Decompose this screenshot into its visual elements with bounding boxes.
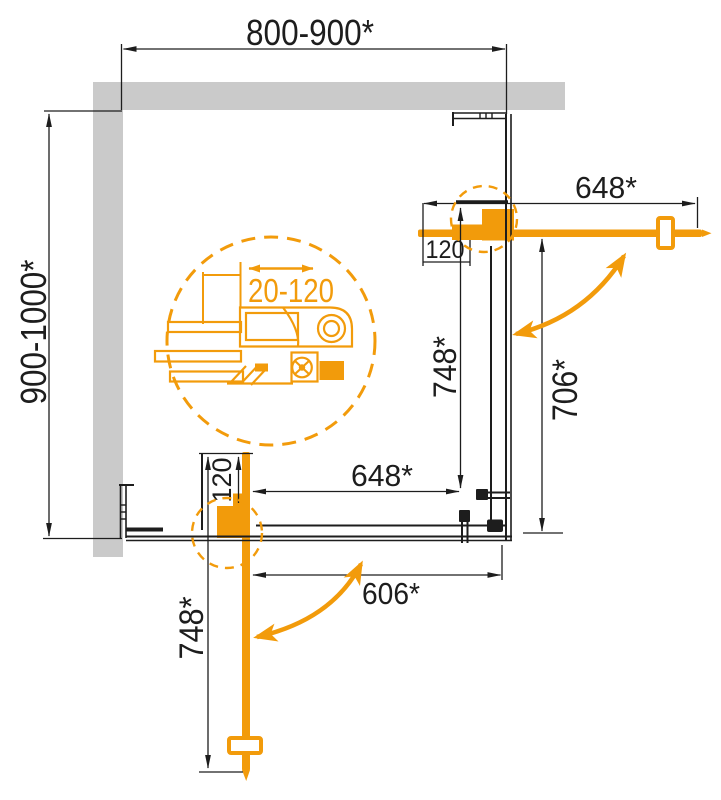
dim-bottom-door-open-label: 748* — [173, 597, 211, 660]
door-right-tip — [702, 230, 712, 238]
wall-top — [93, 82, 565, 110]
dim-bottom-panel-width-label: 648* — [351, 458, 413, 493]
swing-arrow-right-door — [516, 256, 624, 334]
dim-right-opening: 706* — [523, 239, 585, 533]
detail-callout: 20-120 — [155, 237, 375, 445]
walls — [93, 82, 565, 557]
handle-right-door — [658, 218, 673, 248]
technical-drawing-canvas: 800-900* 900-1000* 648* 120 748* — [0, 0, 721, 800]
dim-bottom-hinge-offset: 120 — [207, 457, 239, 503]
corner-fittings — [459, 489, 510, 543]
door-right-pivot-block — [482, 209, 514, 241]
dim-bottom-hinge-offset-label: 120 — [207, 458, 237, 503]
dim-adjustment-range: 20-120 — [203, 262, 334, 324]
door-swing-arrows — [257, 256, 624, 637]
dim-bottom-opening: 606* — [253, 545, 502, 611]
dim-right-opening-label: 706* — [546, 359, 585, 421]
wall-bracket-top — [452, 112, 508, 202]
dim-right-door-width-label: 648* — [575, 170, 637, 205]
dim-adjustment-range-label: 20-120 — [248, 272, 334, 309]
dim-right-door-open-label: 748* — [427, 336, 463, 398]
dim-overall-depth-label: 900-1000* — [13, 260, 54, 405]
shower-enclosure-plan-drawing: 800-900* 900-1000* 648* 120 748* — [0, 0, 721, 800]
dim-overall-width-label: 800-900* — [246, 12, 374, 53]
dim-bottom-opening-label: 606* — [362, 576, 420, 611]
door-bottom-tip — [242, 770, 250, 781]
dim-bottom-panel-width: 648* — [253, 458, 459, 493]
adjustment-mechanism — [155, 308, 352, 386]
wall-left — [93, 82, 123, 557]
enclosure-frame — [119, 112, 512, 543]
door-bottom-pivot-block — [217, 506, 249, 538]
handle-bottom-door — [229, 738, 261, 753]
corner-elbow — [487, 520, 503, 533]
wall-bracket-left — [119, 453, 202, 538]
dim-right-hinge-offset: 120 — [423, 236, 470, 266]
